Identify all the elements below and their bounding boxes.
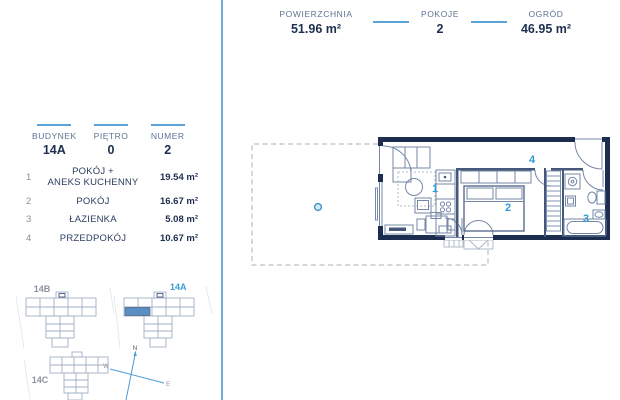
site-plan-14b[interactable]: 14B [14,280,118,352]
round-table [406,179,423,196]
site-plan-14a[interactable]: 14A [112,278,216,352]
room-4-label: 4 [529,154,536,166]
unit-floor-bar [94,124,128,126]
room-row-name: POKÓJ + ANEKS KUCHENNY [42,166,144,188]
tv-icon [389,228,406,232]
room-row-area: 16.67 m² [144,196,198,207]
pillow [496,188,522,199]
stat-garden: OGRÓD 46.95 m² [510,9,582,36]
summary-bar: POWIERZCHNIA 51.96 m² POKOJE 2 OGRÓD 46.… [262,9,582,36]
stat-garden-label: OGRÓD [528,9,563,19]
wardrobe-row [461,171,531,183]
living-room-furniture [385,147,455,234]
plot-lines [24,359,30,399]
unit-building-value: 14A [43,143,66,157]
page: POWIERZCHNIA 51.96 m² POKOJE 2 OGRÓD 46.… [0,0,620,400]
unit-building-bar [37,124,71,126]
room-row-2: 2 POKÓJ 16.67 m² [26,196,198,207]
stove-burners-icon [440,202,450,212]
stat-area-value: 51.96 m² [291,22,341,36]
compass-west-label: W [103,364,109,370]
bed [464,186,524,231]
highlighted-unit[interactable] [125,308,150,316]
building-14a-label: 14A [170,282,187,292]
room-row-area: 10.67 m² [144,233,198,244]
hall-wardrobe [547,171,561,231]
room-1-label: 1 [432,183,438,195]
vertical-divider [221,0,223,400]
unit-building: BUDYNEK 14A [26,124,83,157]
room-row-number: 4 [26,233,42,244]
stat-area-label: POWIERZCHNIA [279,9,352,19]
room-row-4: 4 PRZEDPOKÓJ 10.67 m² [26,233,198,244]
stat-separator [373,21,409,23]
room-row-area: 5.08 m² [144,214,198,225]
compass-east-label: E [166,382,170,388]
room-row-name: POKÓJ [42,196,144,207]
stat-garden-value: 46.95 m² [521,22,571,36]
building-14b-label: 14B [34,284,51,294]
floor-plan: 1 2 3 4 [245,130,617,280]
room-row-name: ŁAZIENKA [42,214,144,225]
building-14c-outline [50,352,108,400]
compass: N W E [102,345,174,400]
room-2-label: 2 [505,202,511,214]
compass-ns-line [126,355,135,400]
building-14a-outline [124,292,194,347]
room-row-number: 1 [26,172,42,183]
building-14c-label: 14C [32,375,49,385]
unit-number-bar [151,124,185,126]
rug [398,172,435,206]
compass-north-label: N [133,345,138,352]
chair [417,219,425,230]
unit-number: NUMER 2 [139,124,196,157]
room-3-label: 3 [583,213,589,225]
washer [565,174,580,189]
room-row-3: 3 ŁAZIENKA 5.08 m² [26,214,198,225]
room-name-line1: POKÓJ + [72,166,114,177]
garden-marker-icon [315,204,322,211]
exterior-steps [444,240,493,249]
room-list: 1 POKÓJ + ANEKS KUCHENNY 19.54 m² 2 POKÓ… [26,166,198,251]
room-row-number: 2 [26,196,42,207]
sink-icon [444,176,447,179]
toilet [588,192,596,203]
kitchen-units [436,170,455,236]
room-row-number: 3 [26,214,42,225]
pillow [467,188,493,199]
toilet-tank [597,191,605,204]
compass-we-line [110,369,164,383]
unit-floor: PIĘTRO 0 [83,124,140,157]
bathroom-fixtures [564,174,606,236]
unit-floor-label: PIĘTRO [94,131,129,141]
unit-floor-value: 0 [108,143,115,157]
building-14b-outline [26,292,96,347]
unit-number-value: 2 [164,143,171,157]
unit-number-label: NUMER [151,131,185,141]
stat-rooms: POKOJE 2 [412,9,468,36]
stat-rooms-value: 2 [437,22,444,36]
unit-info: BUDYNEK 14A PIĘTRO 0 NUMER 2 [26,124,196,157]
room-row-name: PRZEDPOKÓJ [42,233,144,244]
stat-separator [471,21,507,23]
room-row-1: 1 POKÓJ + ANEKS KUCHENNY 19.54 m² [26,166,198,188]
room-row-area: 19.54 m² [144,172,198,183]
stat-rooms-label: POKOJE [421,9,459,19]
unit-building-label: BUDYNEK [32,131,77,141]
stat-area: POWIERZCHNIA 51.96 m² [262,9,370,36]
room-name-line2: ANEKS KUCHENNY [48,177,139,188]
